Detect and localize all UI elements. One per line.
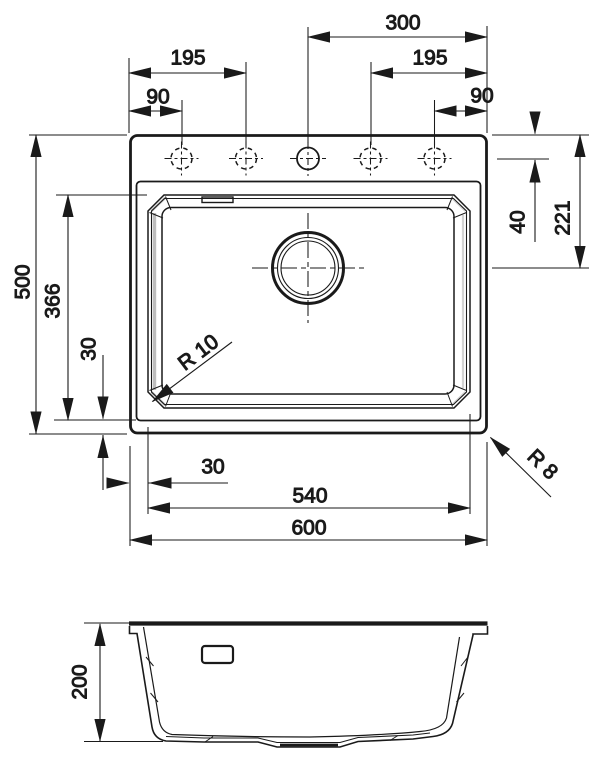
dim-label-r10: R 10 — [174, 330, 223, 375]
dim-label-300: 300 — [385, 11, 420, 34]
tap-hole-optional-5 — [418, 142, 452, 176]
dim-label-90-right: 90 — [470, 84, 493, 107]
tap-hole-optional-2 — [229, 142, 263, 176]
dim-label-30-vertical: 30 — [77, 337, 100, 360]
dimension-labels: 300 195 90 195 90 500 366 30 30 540 600 … — [11, 11, 574, 539]
top-view-drawing: 300 195 90 195 90 500 366 30 30 540 600 … — [11, 11, 589, 546]
dim-label-195-right: 195 — [412, 46, 447, 69]
tap-holes — [165, 142, 452, 177]
dim-label-90-left: 90 — [146, 85, 169, 108]
dim-label-40: 40 — [506, 210, 529, 233]
side-inner-profile — [144, 627, 460, 737]
overflow-slot-top — [202, 197, 233, 203]
tap-hole-optional-1 — [165, 142, 199, 176]
side-facet-ticks — [146, 657, 468, 742]
dim-label-366: 366 — [41, 283, 64, 318]
dim-label-30-horizontal: 30 — [201, 455, 224, 478]
extension-lines-top — [129, 26, 487, 145]
dim-label-r8: R 8 — [523, 445, 562, 484]
overflow-slot-side — [202, 646, 233, 663]
tap-hole-center — [290, 142, 326, 176]
dim-label-600: 600 — [291, 516, 326, 539]
side-view-drawing: 200 — [68, 623, 487, 747]
dim-label-221: 221 — [551, 200, 574, 235]
drain-outlet — [252, 213, 364, 323]
dim-label-500: 500 — [11, 264, 34, 299]
bowl-middle-outline — [152, 199, 467, 405]
technical-drawing-page: 300 195 90 195 90 500 366 30 30 540 600 … — [0, 0, 600, 765]
dim-label-540: 540 — [292, 484, 327, 507]
bowl-outer-outline — [148, 195, 470, 408]
dim-label-200: 200 — [68, 664, 91, 699]
tap-hole-optional-4 — [354, 142, 388, 176]
extension-lines-right — [492, 135, 589, 268]
sink-dimension-drawing: 300 195 90 195 90 500 366 30 30 540 600 … — [0, 0, 600, 765]
dim-label-195-left: 195 — [170, 46, 205, 69]
